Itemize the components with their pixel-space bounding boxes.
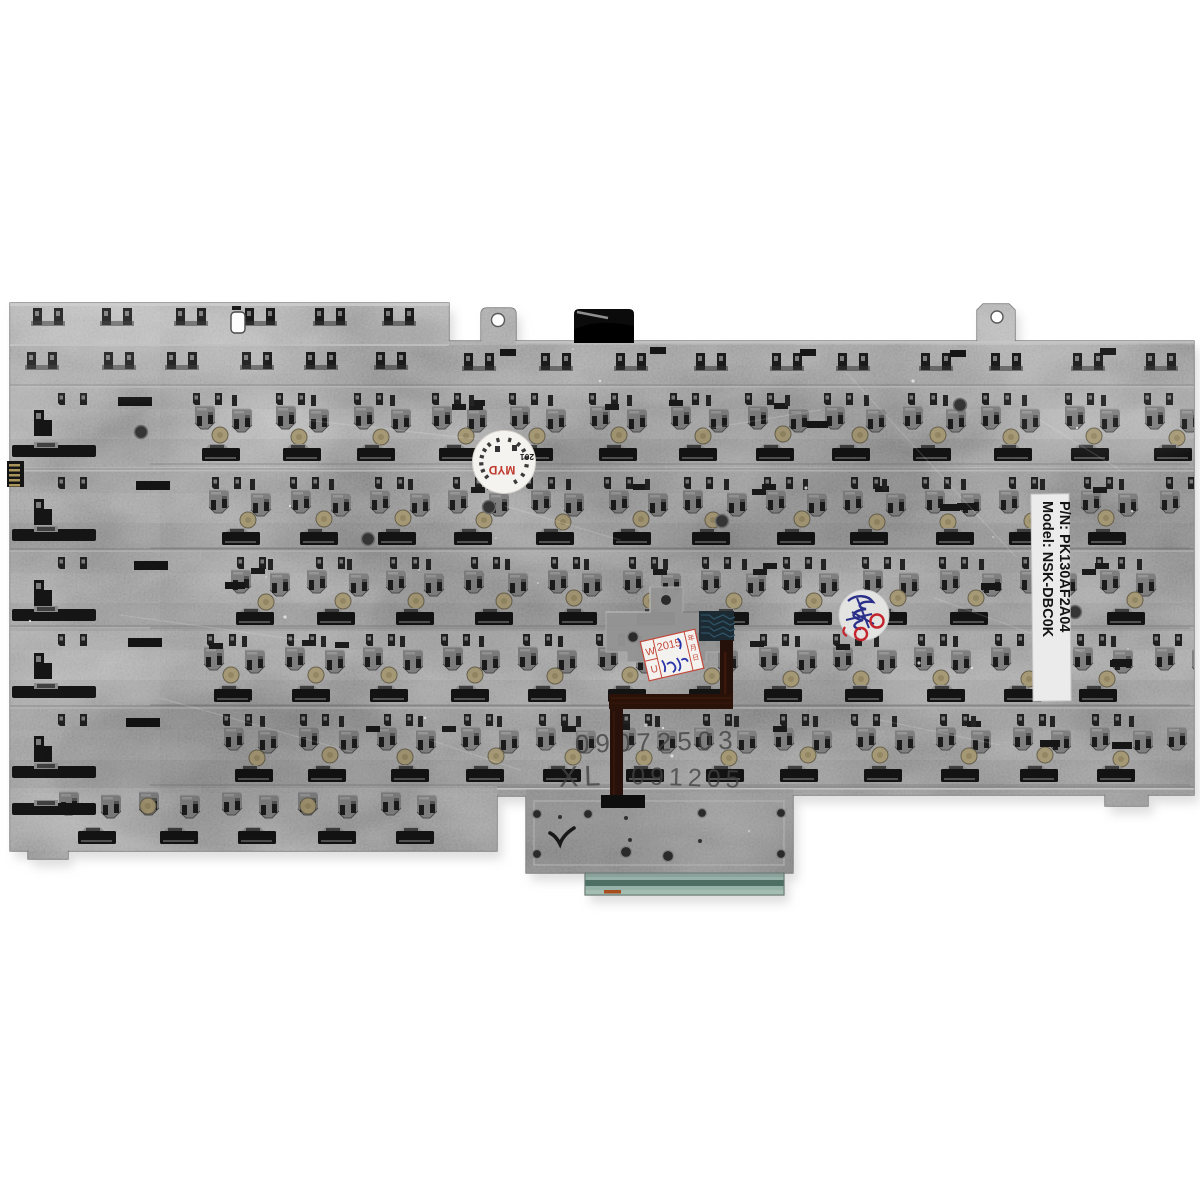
svg-text:09072503: 09072503 [575, 725, 739, 759]
svg-text:XL: XL [558, 760, 607, 794]
svg-text:P/N: PK130AF2A04: P/N: PK130AF2A04 [1056, 501, 1072, 632]
svg-text:201: 201 [520, 452, 534, 462]
svg-text:MYD: MYD [488, 463, 515, 477]
svg-text:Model: NSK-DBC0K: Model: NSK-DBC0K [1039, 501, 1055, 638]
